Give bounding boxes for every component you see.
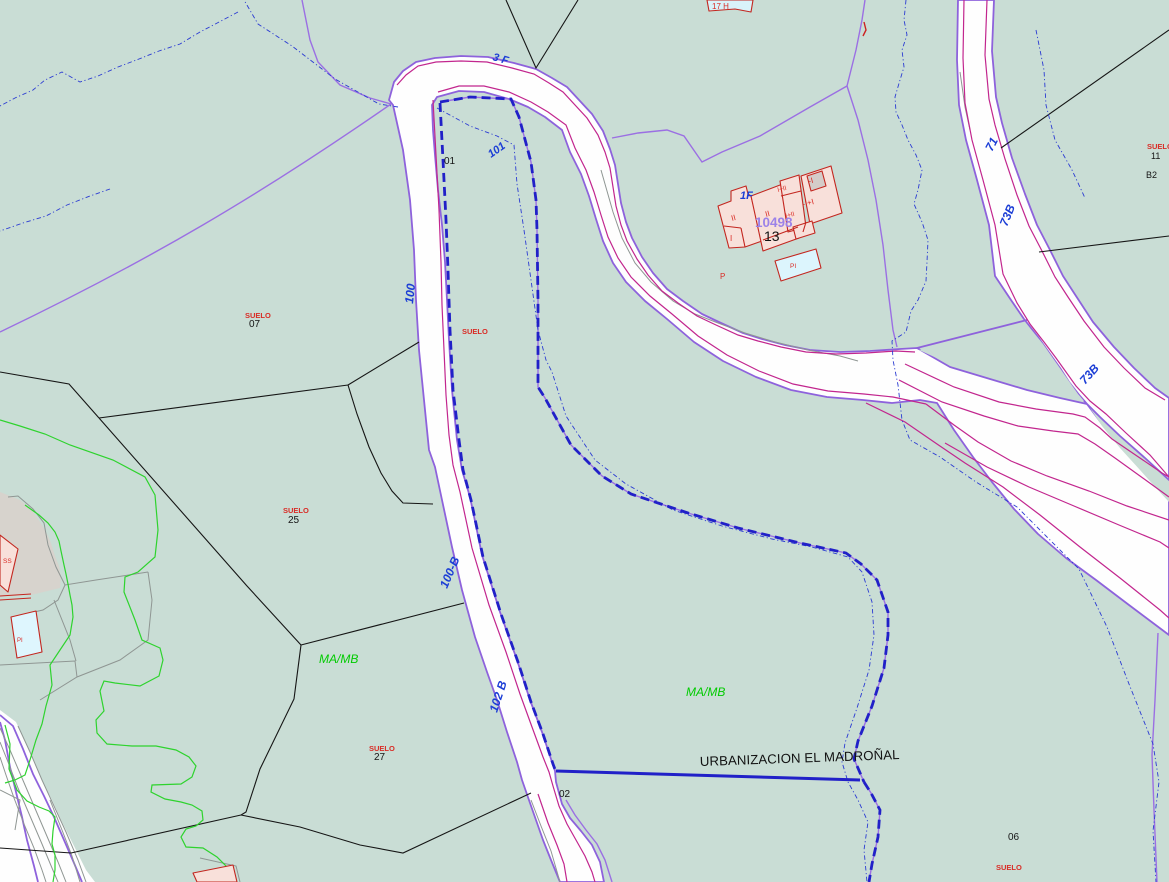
svg-text:MA/MB: MA/MB — [319, 652, 358, 666]
svg-text:11: 11 — [1151, 151, 1160, 161]
svg-text:PI: PI — [17, 638, 23, 644]
svg-text:02: 02 — [559, 789, 571, 800]
svg-text:I: I — [730, 234, 732, 243]
svg-text:MA/MB: MA/MB — [686, 685, 725, 699]
svg-text:SS: SS — [3, 558, 12, 565]
svg-text:27: 27 — [374, 752, 386, 763]
svg-text:SUELO: SUELO — [462, 327, 488, 336]
svg-text:PI: PI — [790, 263, 796, 270]
svg-text:SUELO: SUELO — [1147, 142, 1169, 151]
svg-text:100: 100 — [402, 283, 418, 305]
svg-text:17 H: 17 H — [712, 2, 729, 11]
svg-text:1F: 1F — [740, 190, 753, 202]
svg-text:SUELO: SUELO — [996, 863, 1022, 872]
svg-text:B2: B2 — [1146, 170, 1157, 180]
svg-text:SUELO: SUELO — [283, 506, 309, 515]
svg-text:07: 07 — [249, 319, 261, 330]
svg-text:13: 13 — [764, 228, 780, 244]
svg-text:06: 06 — [1008, 832, 1020, 843]
svg-text:01: 01 — [444, 156, 456, 167]
svg-text:P: P — [720, 272, 725, 281]
svg-text:25: 25 — [288, 515, 300, 526]
